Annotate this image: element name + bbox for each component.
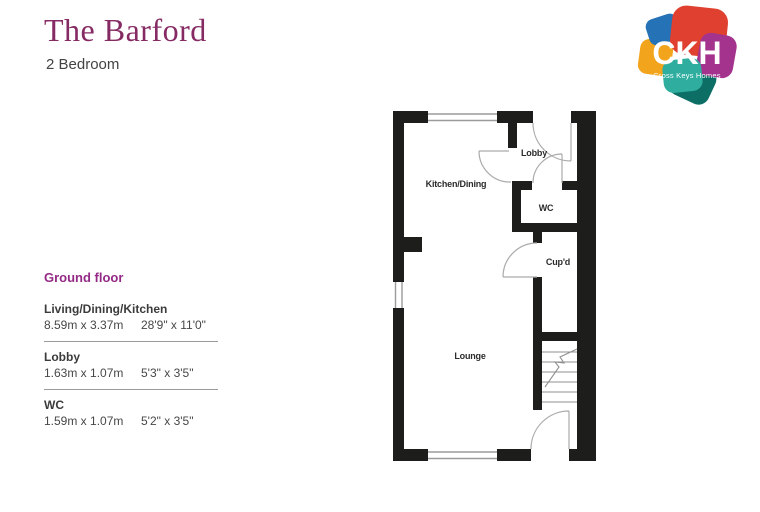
room-label-kitchen-dining: Kitchen/Dining bbox=[426, 179, 487, 189]
stairs-direction-arrow bbox=[545, 349, 577, 387]
page: The Barford 2 Bedroom CKH Cross Keys Hom… bbox=[0, 0, 760, 512]
staircase bbox=[542, 349, 577, 402]
room-label-wc: WC bbox=[539, 203, 554, 213]
logo-tagline: Cross Keys Homes bbox=[637, 71, 737, 80]
rear-door-swing bbox=[531, 411, 569, 449]
walls bbox=[393, 111, 596, 461]
doors bbox=[479, 123, 571, 449]
cupboard-door-swing bbox=[503, 243, 537, 277]
room-label-lobby: Lobby bbox=[521, 148, 547, 158]
kitchen-door-swing bbox=[479, 151, 511, 182]
windows bbox=[396, 114, 498, 459]
room-label-cupboard: Cup'd bbox=[546, 257, 570, 267]
logo-text: CKH bbox=[637, 38, 737, 68]
room-label-lounge: Lounge bbox=[454, 351, 485, 361]
